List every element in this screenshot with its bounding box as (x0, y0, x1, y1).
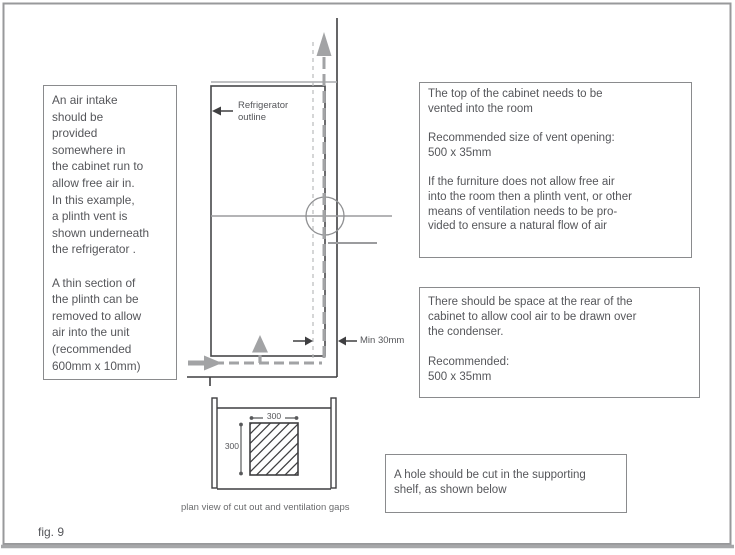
min30-arrow-left-icon (338, 337, 346, 346)
gap-arrow-right-icon (305, 337, 313, 346)
cutout-hatched-area (250, 423, 298, 475)
cutout-height-label: 300 (221, 441, 239, 451)
fridge-label-arrow-icon (212, 107, 221, 116)
refrigerator-outline-label: Refrigerator outline (238, 100, 288, 123)
airflow-arrow-tail (188, 361, 204, 366)
airflow-arrow-right-icon (204, 356, 222, 371)
figure-number: fig. 9 (38, 525, 64, 539)
refrigerator-outline (211, 86, 325, 356)
dim-left-dot-bottom (239, 472, 243, 476)
airflow-arrow-up-icon (317, 32, 332, 56)
plinth-vent-arrow-icon (252, 335, 268, 353)
note-top-vent: The top of the cabinet needs to be vente… (419, 82, 692, 258)
dim-top-dot-right (295, 416, 299, 420)
note-air-intake: An air intake should be provided somewhe… (43, 85, 177, 380)
plinth-vent-arrow-stem (258, 355, 261, 363)
plan-left-rail (212, 398, 217, 488)
note-rear-space: There should be space at the rear of the… (419, 287, 700, 398)
dim-left-dot-top (239, 423, 243, 427)
dim-top-dot-left (250, 416, 254, 420)
plan-view-caption: plan view of cut out and ventilation gap… (181, 502, 349, 513)
manual-page: An air intake should be provided somewhe… (0, 0, 735, 555)
note-shelf-hole: A hole should be cut in the supporting s… (385, 454, 627, 513)
min-30mm-label: Min 30mm (360, 335, 404, 346)
plan-right-rail (331, 398, 336, 488)
cutout-width-label: 300 (263, 411, 285, 421)
